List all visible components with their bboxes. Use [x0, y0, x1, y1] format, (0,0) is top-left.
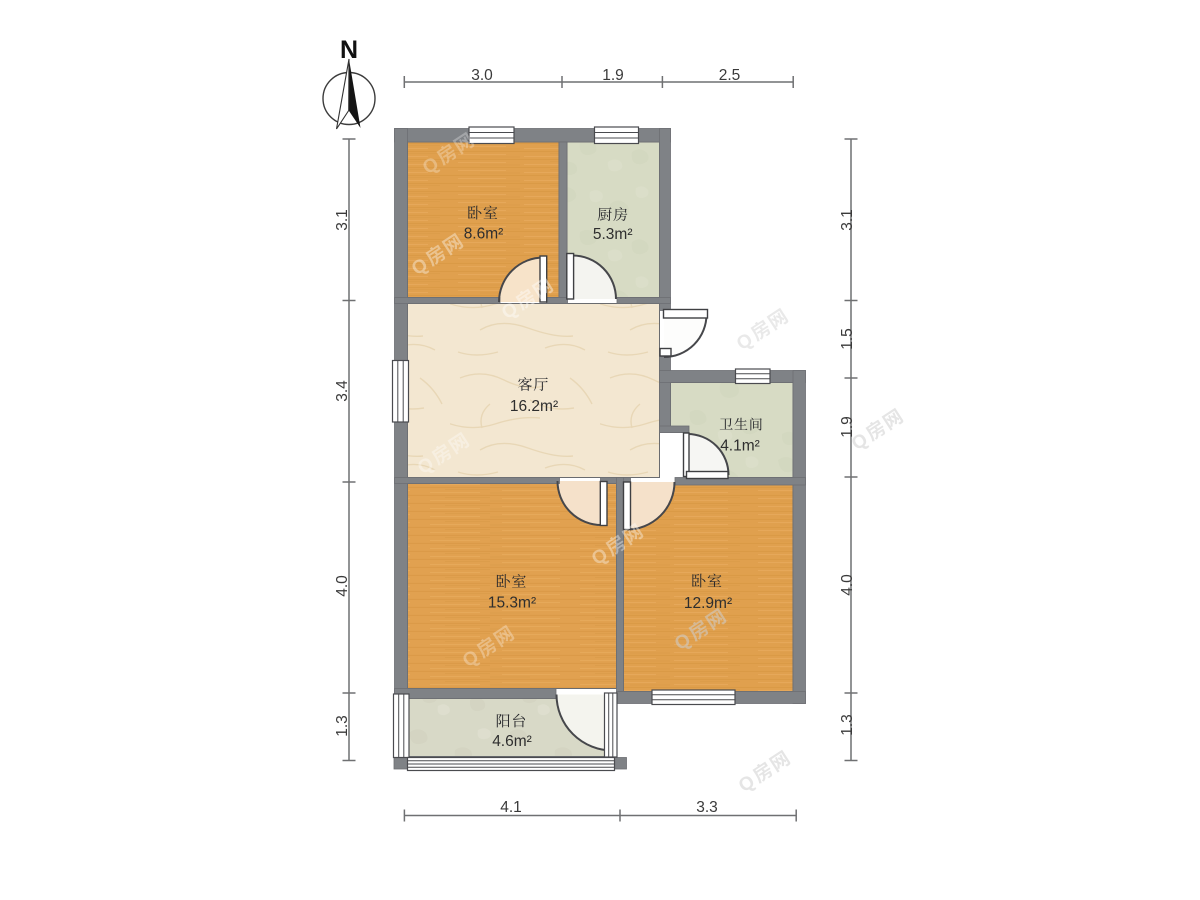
svg-text:4.1m²: 4.1m²: [720, 438, 760, 455]
svg-text:1.5: 1.5: [839, 328, 856, 350]
svg-text:1.9: 1.9: [602, 67, 624, 84]
svg-text:12.9m²: 12.9m²: [684, 595, 732, 612]
svg-text:4.1: 4.1: [500, 799, 522, 816]
svg-text:4.0: 4.0: [839, 574, 856, 596]
svg-text:8.6m²: 8.6m²: [464, 226, 504, 243]
svg-text:3.3: 3.3: [696, 799, 718, 816]
svg-text:1.3: 1.3: [839, 714, 856, 736]
svg-text:Q: Q: [733, 329, 757, 355]
svg-text:3.1: 3.1: [839, 209, 856, 231]
svg-text:3.4: 3.4: [334, 380, 351, 402]
svg-text:1.3: 1.3: [334, 715, 351, 737]
svg-text:2.5: 2.5: [719, 67, 741, 84]
svg-text:4.0: 4.0: [334, 575, 351, 597]
svg-text:3.1: 3.1: [334, 209, 351, 231]
svg-text:16.2m²: 16.2m²: [510, 398, 558, 415]
svg-text:N: N: [340, 36, 358, 64]
svg-text:Q: Q: [735, 771, 759, 797]
svg-text:3.0: 3.0: [471, 67, 493, 84]
svg-text:15.3m²: 15.3m²: [488, 595, 536, 612]
svg-text:5.3m²: 5.3m²: [593, 226, 633, 243]
svg-text:4.6m²: 4.6m²: [492, 733, 532, 750]
